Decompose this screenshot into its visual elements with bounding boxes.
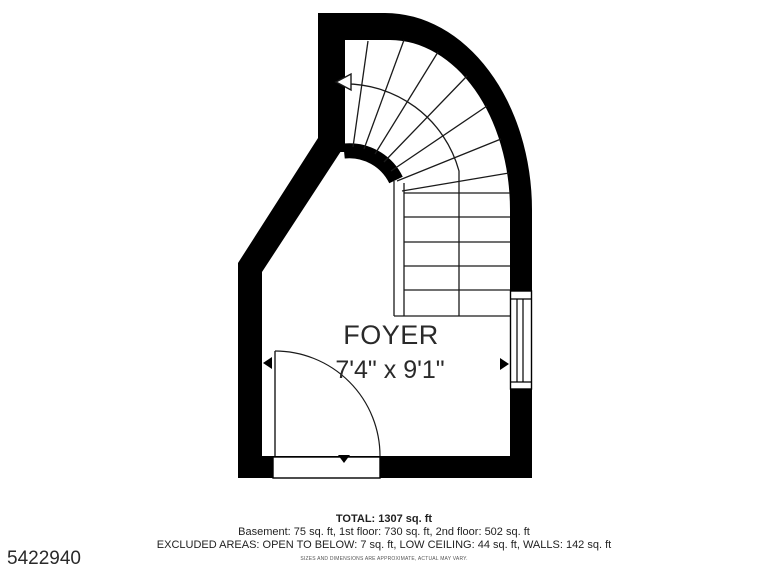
floor-plan-drawing: FOYER 7'4" x 9'1"	[0, 0, 768, 576]
room-dimensions-label: 7'4" x 9'1"	[335, 356, 444, 384]
window-symbol	[511, 291, 532, 389]
exterior-walls	[238, 13, 532, 478]
dimension-marker-right-icon	[500, 358, 509, 370]
door-opening	[273, 457, 380, 478]
listing-id: 5422940	[7, 548, 81, 570]
stair-winder-tread	[391, 106, 487, 171]
floor-plan-page: FOYER 7'4" x 9'1" TOTAL: 1307 sq. ft Bas…	[0, 0, 768, 576]
stair-winder-tread	[402, 173, 509, 191]
excluded-areas-text: EXCLUDED AREAS: OPEN TO BELOW: 7 sq. ft,…	[0, 539, 768, 552]
stair-winder-tread	[364, 40, 404, 149]
total-area-text: TOTAL: 1307 sq. ft	[0, 513, 768, 526]
stair-walk-line	[341, 84, 459, 316]
dimension-marker-left-icon	[263, 357, 272, 369]
stair-newel-wall	[344, 151, 396, 180]
stair-winder-tread	[353, 41, 368, 147]
disclaimer-text: SIZES AND DIMENSIONS ARE APPROXIMATE, AC…	[0, 557, 768, 563]
room-name-label: FOYER	[343, 320, 439, 350]
floor-breakdown-text: Basement: 75 sq. ft, 1st floor: 730 sq. …	[0, 526, 768, 539]
